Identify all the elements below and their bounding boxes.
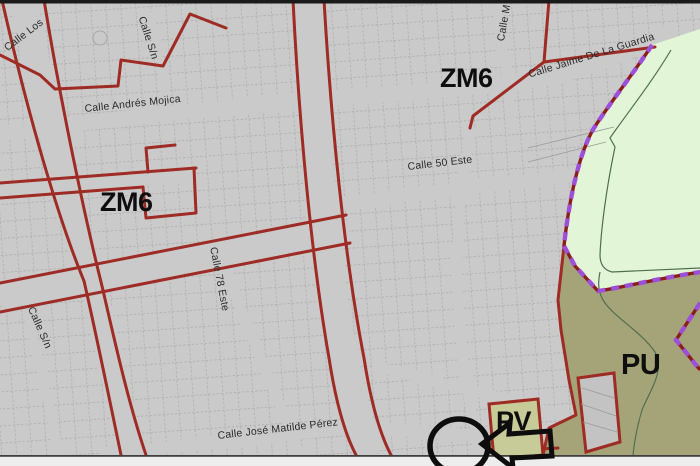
top-edge-strip [0,0,700,4]
red-outlined-gray-parcel [578,373,620,452]
pv-parcel [489,399,543,460]
cul-de-sac [93,31,107,45]
map-canvas [0,0,700,466]
bottom-edge-line [0,455,700,457]
zoning-map-frame: Calle Los Calle S/n Calle M Calle Andrés… [0,0,700,466]
